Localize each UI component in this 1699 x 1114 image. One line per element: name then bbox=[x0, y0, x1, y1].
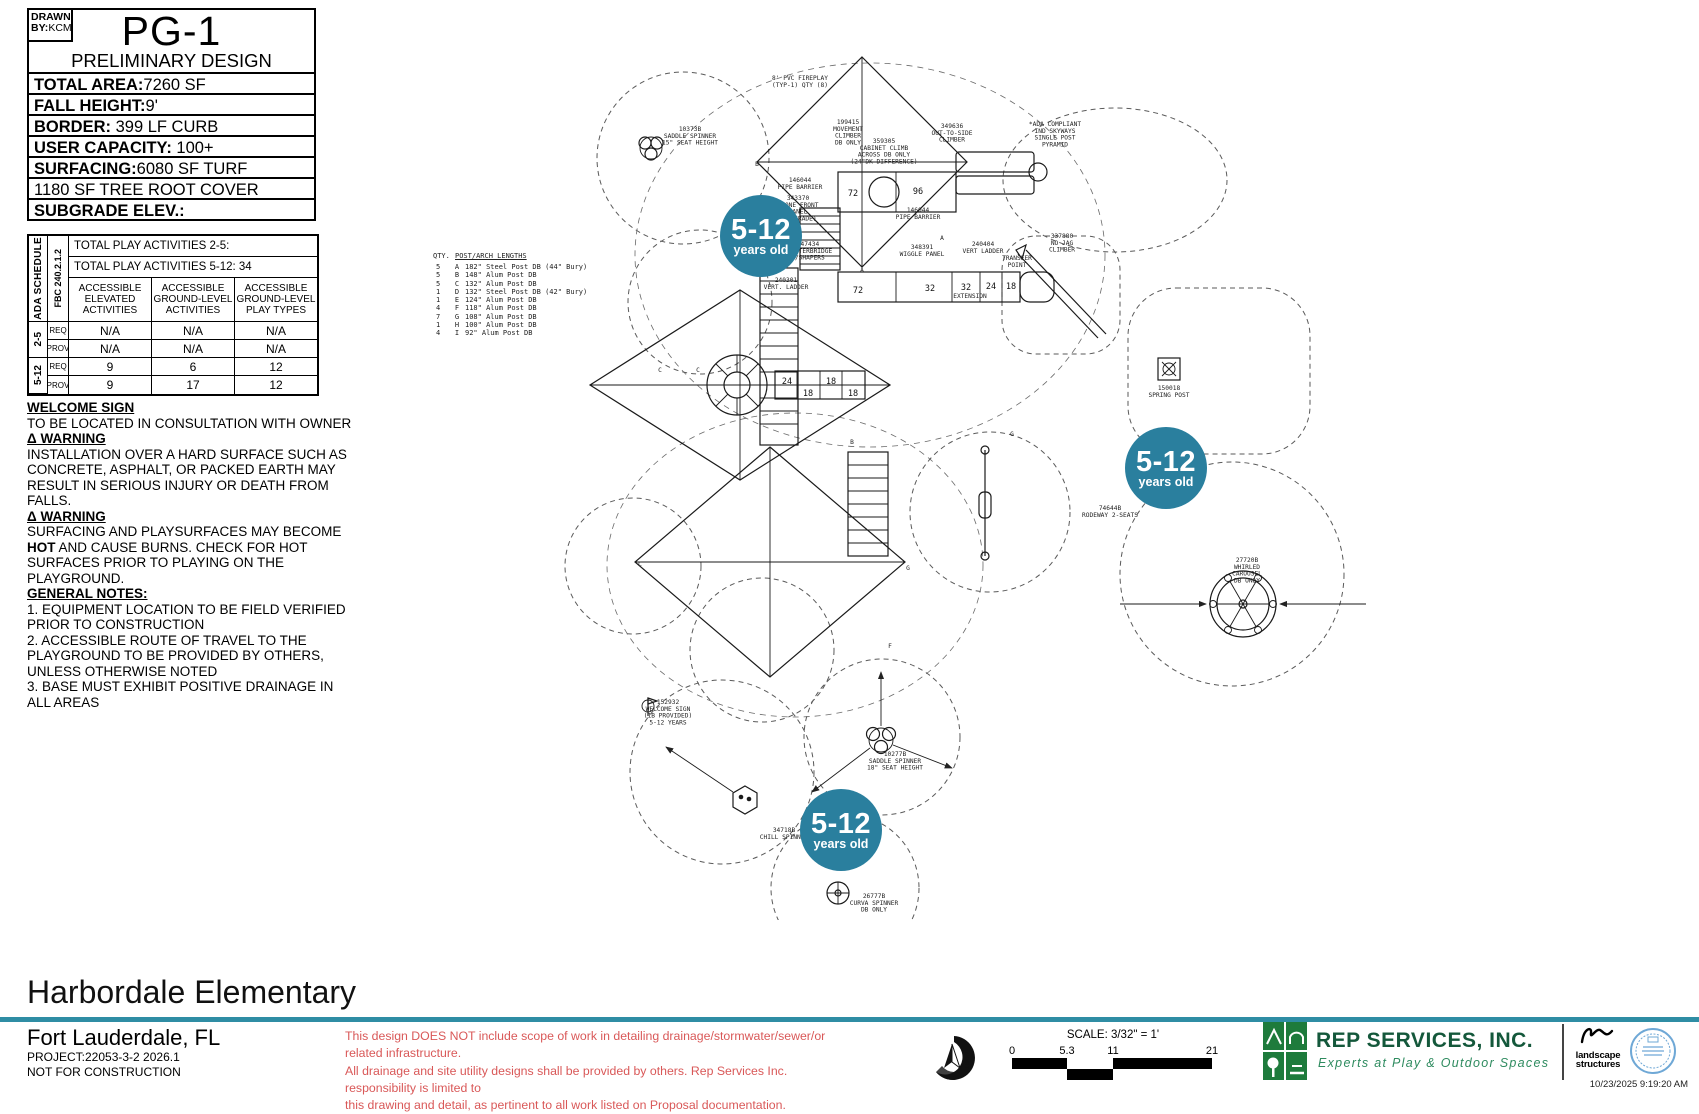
equipment-label: 8' PVC FIREPLAY(TYP-1) QTY (8) bbox=[772, 75, 828, 89]
equipment-label: B bbox=[755, 161, 759, 168]
sheet-header: DRAWN BY:KCM PG-1 PRELIMINARY DESIGN bbox=[27, 8, 316, 74]
deck-number: 72 bbox=[848, 189, 858, 199]
ada-prov-label: PROV bbox=[48, 376, 69, 394]
ada-value: 9 bbox=[69, 358, 152, 376]
welcome-sign-body: TO BE LOCATED IN CONSULTATION WITH OWNER bbox=[27, 416, 357, 432]
drawn-by-box: DRAWN BY:KCM bbox=[27, 8, 73, 42]
equipment-label: 146044PIPE BARRIER bbox=[778, 177, 823, 191]
curva-spinner bbox=[827, 882, 849, 904]
ada-code-label: FBC 240.2.1.2 bbox=[48, 236, 69, 322]
equipment-label: 240404VERT LADDER bbox=[963, 241, 1004, 255]
age-badge-1: 5-12 years old bbox=[720, 195, 802, 277]
deck-number: 18 bbox=[848, 389, 858, 399]
age-badge-2: 5-12 years old bbox=[1125, 427, 1207, 509]
warning-title-1: Δ WARNING bbox=[27, 431, 357, 447]
landscape-structures-logo: landscape structures bbox=[1570, 1022, 1626, 1069]
age-badge-3: 5-12 years old bbox=[800, 789, 882, 871]
construction-status: NOT FOR CONSTRUCTION bbox=[27, 1065, 181, 1079]
spec-subgrade: SUBGRADE ELEV.: bbox=[27, 198, 316, 221]
equipment-label: 10277BSADDLE SPINNER18" SEAT HEIGHT bbox=[867, 751, 923, 772]
saddle-spinner-top bbox=[639, 137, 663, 160]
disclaimer-line: All drainage and site utility designs sh… bbox=[345, 1063, 835, 1098]
warning-title-2: Δ WARNING bbox=[27, 509, 357, 525]
ls-script-mark bbox=[1576, 1022, 1620, 1046]
legend-title: POST/ARCH LENGTHS bbox=[455, 252, 527, 260]
ada-age-2-5: 2-5 bbox=[29, 322, 48, 358]
saddle-spinner-bottom bbox=[812, 672, 952, 792]
equipment-label: 74644BRODEWAY 2-SEATS bbox=[1082, 505, 1138, 519]
notes-block: WELCOME SIGN TO BE LOCATED IN CONSULTATI… bbox=[27, 400, 357, 710]
warning-body-1: INSTALLATION OVER A HARD SURFACE SUCH AS… bbox=[27, 447, 357, 509]
equipment-label: G bbox=[906, 565, 910, 572]
equipment-label: G bbox=[1010, 431, 1014, 438]
ada-value: 12 bbox=[235, 358, 317, 376]
equipment-label: 27720BWHIRLEDCAROUSELDB ONLY bbox=[1232, 557, 1262, 584]
general-notes-title: GENERAL NOTES: bbox=[27, 586, 357, 602]
equipment-label: 199415MOVEMENTCLIMBERDB ONLY bbox=[833, 119, 863, 146]
equipment-label: A bbox=[940, 235, 944, 242]
scale-tick: 21 bbox=[1206, 1045, 1218, 1057]
equipment-label: C bbox=[638, 561, 642, 568]
certification-stamp bbox=[1628, 1026, 1678, 1076]
deck-number: 32 bbox=[961, 283, 971, 293]
equipment-label: 26777BCURVA SPINNERDB ONLY bbox=[850, 893, 899, 914]
deck-number: 24 bbox=[986, 282, 996, 292]
ada-value: 9 bbox=[69, 376, 152, 394]
deck-number: 18 bbox=[803, 389, 813, 399]
use-zone-boundaries bbox=[565, 63, 1344, 920]
general-notes-list: 1. EQUIPMENT LOCATION TO BE FIELD VERIFI… bbox=[27, 602, 357, 711]
teal-divider bbox=[0, 1017, 1699, 1022]
equipment-label: TRANSFERPOINT bbox=[1002, 255, 1032, 269]
spring-post bbox=[1158, 358, 1180, 380]
drawn-by-value: KCM bbox=[48, 22, 71, 34]
ada-value: N/A bbox=[235, 340, 317, 358]
spec-tree-root: 1180 SF TREE ROOT COVER bbox=[27, 177, 316, 200]
ada-value: 6 bbox=[152, 358, 235, 376]
print-timestamp: 10/23/2025 9:19:20 AM bbox=[1576, 1079, 1688, 1090]
equipment-label: F bbox=[888, 643, 892, 650]
company-tagline: Experts at Play & Outdoor Spaces bbox=[1318, 1056, 1549, 1070]
ada-prov-label: PROV bbox=[48, 340, 69, 358]
deck-number: 24 bbox=[782, 377, 792, 387]
ada-value: N/A bbox=[235, 322, 317, 340]
equipment-label: EXTENSION bbox=[953, 293, 987, 300]
ada-req-label: REQ bbox=[48, 322, 69, 340]
equipment-label: A bbox=[860, 267, 864, 274]
deck-number: 96 bbox=[913, 187, 923, 197]
equipment-label: B bbox=[850, 439, 854, 446]
deck-number: 72 bbox=[853, 286, 863, 296]
scale-label: SCALE: 3/32" = 1' bbox=[1067, 1029, 1159, 1041]
ada-req-label: REQ bbox=[48, 358, 69, 376]
company-name: REP SERVICES, INC. bbox=[1316, 1029, 1533, 1053]
footer-separator bbox=[1562, 1024, 1564, 1080]
ada-side-label: ADA SCHEDULE bbox=[29, 236, 48, 322]
deck-number: 32 bbox=[925, 284, 935, 294]
general-note-item: 3. BASE MUST EXHIBIT POSITIVE DRAINAGE I… bbox=[27, 679, 357, 710]
equipment-label: 240301VERT. LADDER bbox=[764, 277, 809, 291]
warning-body-2: SURFACING AND PLAYSURFACES MAY BECOME HO… bbox=[27, 524, 357, 586]
north-arrow: NORTH bbox=[928, 1032, 980, 1086]
scale-bar: SCALE: 3/32" = 1' 0 5.3 11 21 bbox=[1000, 1024, 1240, 1086]
scale-tick: 0 bbox=[1009, 1045, 1015, 1057]
ada-value: N/A bbox=[69, 322, 152, 340]
deck-number: 18 bbox=[826, 377, 836, 387]
ada-value: 12 bbox=[235, 376, 317, 394]
ada-value: 17 bbox=[152, 376, 235, 394]
scale-tick: 5.3 bbox=[1059, 1045, 1074, 1057]
project-location: Fort Lauderdale, FL bbox=[27, 1025, 220, 1051]
ada-value: N/A bbox=[69, 340, 152, 358]
equipment-label: C bbox=[696, 367, 700, 374]
by-label: BY: bbox=[31, 22, 48, 34]
deck-number: 18 bbox=[1006, 282, 1016, 292]
equipment-label: 349636OUT-TO-SIDECLIMBER bbox=[932, 123, 973, 144]
north-label: NORTH bbox=[963, 1052, 969, 1074]
equipment-label: 10373BSADDLE SPINNER15" SEAT HEIGHT bbox=[662, 126, 718, 147]
ada-total-5-12: TOTAL PLAY ACTIVITIES 5-12: 34 bbox=[69, 257, 317, 278]
general-note-item: 2. ACCESSIBLE ROUTE OF TRAVEL TO THE PLA… bbox=[27, 633, 357, 680]
playground-plan-drawing: 10373BSADDLE SPINNER15" SEAT HEIGHT8' PV… bbox=[560, 40, 1480, 920]
clatterbridge bbox=[760, 268, 798, 445]
ls-word-2: structures bbox=[1570, 1060, 1626, 1069]
spec-fall-height: FALL HEIGHT:9' bbox=[27, 93, 316, 116]
ada-header-elevated: ACCESSIBLE ELEVATED ACTIVITIES bbox=[69, 278, 152, 322]
ada-age-5-12: 5-12 bbox=[29, 358, 48, 394]
drainage-disclaimer: This design DOES NOT include scope of wo… bbox=[345, 1028, 835, 1114]
scale-tick: 11 bbox=[1107, 1045, 1118, 1057]
title-block: DRAWN BY:KCM PG-1 PRELIMINARY DESIGN TOT… bbox=[27, 8, 316, 221]
spec-border: BORDER: 399 LF CURB bbox=[27, 114, 316, 137]
ada-value: N/A bbox=[152, 340, 235, 358]
general-note-item: 1. EQUIPMENT LOCATION TO BE FIELD VERIFI… bbox=[27, 602, 357, 633]
disclaimer-line: This design DOES NOT include scope of wo… bbox=[345, 1028, 835, 1063]
equipment-label: 348391WIGGLE PANEL bbox=[900, 244, 945, 258]
spec-user-capacity: USER CAPACITY: 100+ bbox=[27, 135, 316, 158]
ada-value: N/A bbox=[152, 322, 235, 340]
legend-qty-header: QTY. bbox=[433, 252, 455, 260]
ada-schedule-table: ADA SCHEDULE FBC 240.2.1.2 TOTAL PLAY AC… bbox=[27, 234, 319, 396]
spec-total-area: TOTAL AREA:7260 SF bbox=[27, 72, 316, 95]
project-title: Harbordale Elementary bbox=[27, 974, 356, 1011]
chill-spinner bbox=[666, 747, 757, 814]
ada-header-ground-activities: ACCESSIBLE GROUND-LEVEL ACTIVITIES bbox=[152, 278, 235, 322]
rep-services-logo-icon bbox=[1263, 1022, 1309, 1082]
sheet-subtitle: PRELIMINARY DESIGN bbox=[29, 51, 314, 70]
welcome-sign-title: WELCOME SIGN bbox=[27, 400, 357, 416]
equipment-label: C bbox=[658, 367, 662, 374]
ada-header-ground-types: ACCESSIBLE GROUND-LEVEL PLAY TYPES bbox=[235, 278, 317, 322]
equipment-label: 150018SPRING POST bbox=[1149, 385, 1190, 399]
ada-total-2-5: TOTAL PLAY ACTIVITIES 2-5: bbox=[69, 236, 317, 257]
equipment-label: 146044PIPE BARRIER bbox=[896, 207, 941, 221]
drawing-sheet: { "title_block": { "drawn_l1": "DRAWN", … bbox=[0, 0, 1699, 1100]
project-number: PROJECT:22053-3-2 2026.1 bbox=[27, 1050, 180, 1064]
spec-surfacing: SURFACING:6080 SF TURF bbox=[27, 156, 316, 179]
equipment-label: 337880NO JAGCLIMBER bbox=[1049, 233, 1075, 254]
equipment-label: *ADA COMPLIANTIND SKYWAYSSINGLE POSTPYRA… bbox=[1029, 121, 1081, 148]
